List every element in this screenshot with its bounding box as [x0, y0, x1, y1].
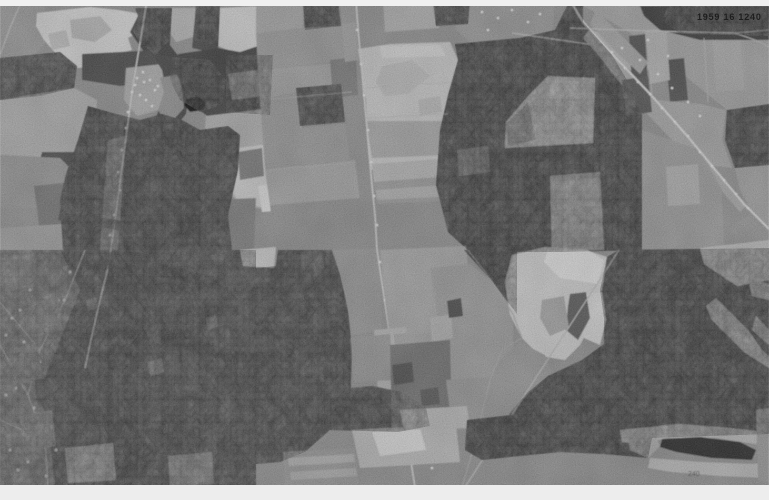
svg-text:1959 16 1240: 1959 16 1240 — [697, 12, 762, 22]
